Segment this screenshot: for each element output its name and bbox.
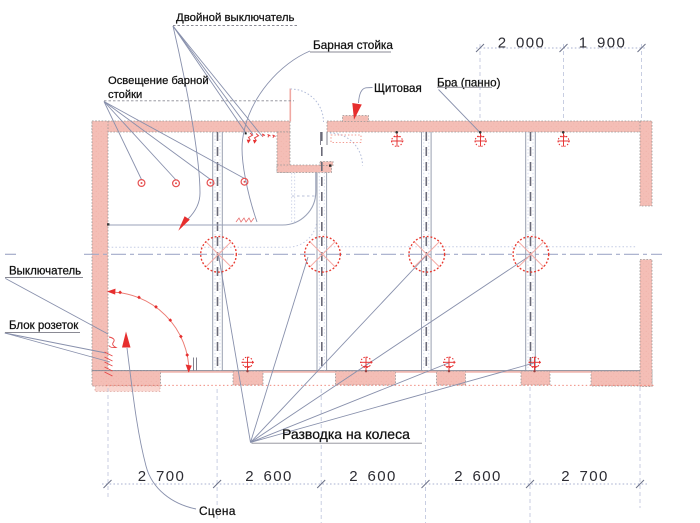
svg-text:Барная стойка: Барная стойка <box>313 38 393 52</box>
svg-text:2 600: 2 600 <box>349 468 397 485</box>
svg-text:2 700: 2 700 <box>561 468 609 485</box>
svg-text:Двойной выключатель: Двойной выключатель <box>176 12 294 24</box>
svg-text:2 600: 2 600 <box>245 468 293 485</box>
svg-text:Разводка на колеса: Разводка на колеса <box>282 426 410 442</box>
svg-text:стойки: стойки <box>108 89 142 101</box>
svg-text:Освещение барной: Освещение барной <box>108 75 209 87</box>
svg-text:Выключатель: Выключатель <box>9 266 81 278</box>
svg-text:1 900: 1 900 <box>579 35 627 52</box>
svg-text:2 000: 2 000 <box>498 35 546 52</box>
svg-text:Блок розеток: Блок розеток <box>9 320 79 332</box>
svg-text:Щитовая: Щитовая <box>374 82 422 95</box>
svg-text:2 700: 2 700 <box>138 468 186 485</box>
svg-text:2 600: 2 600 <box>454 468 502 485</box>
svg-text:Сцена: Сцена <box>199 504 236 518</box>
